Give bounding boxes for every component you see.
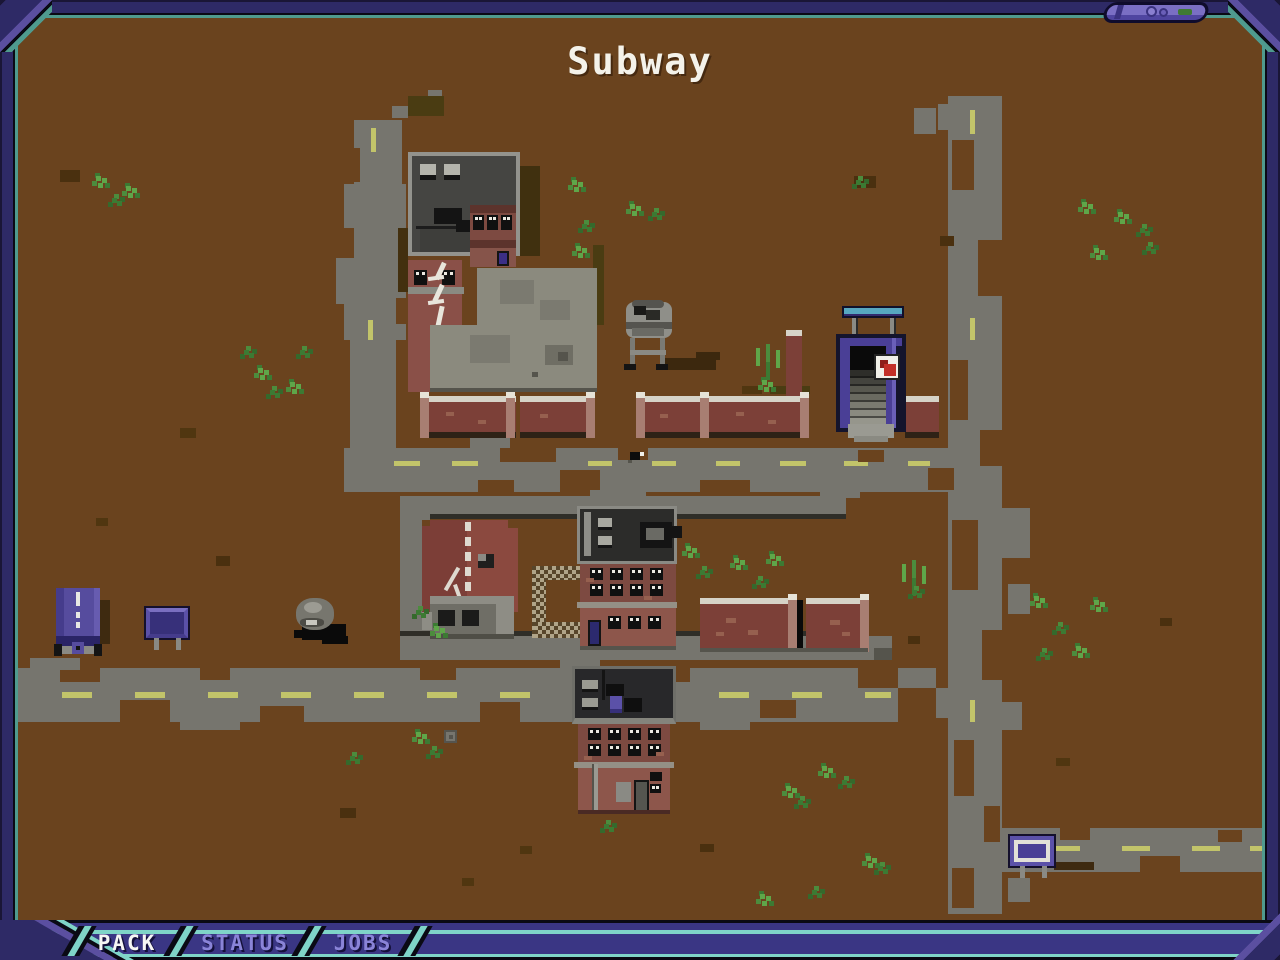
frame-top bbox=[0, 0, 1280, 18]
tab-pack[interactable]: PACK bbox=[84, 931, 170, 955]
frame-left bbox=[0, 0, 18, 960]
tab-status[interactable]: STATUS bbox=[192, 931, 298, 955]
grass-tuft bbox=[756, 580, 761, 585]
grass-tuft bbox=[1118, 212, 1123, 217]
frame-corner-bottomright bbox=[1232, 912, 1280, 960]
grass-tuft bbox=[652, 212, 657, 217]
grass-tuft bbox=[1140, 228, 1145, 233]
capsule-led-icon bbox=[1178, 9, 1192, 15]
grass-tuft bbox=[126, 186, 131, 191]
grass-tuft bbox=[1034, 596, 1039, 601]
grass-tuft bbox=[416, 610, 421, 615]
frame-right bbox=[1262, 0, 1280, 960]
grass-tuft bbox=[786, 786, 791, 791]
grass-tuft bbox=[822, 766, 827, 771]
grass-tuft bbox=[1056, 626, 1061, 631]
grass-tuft bbox=[762, 380, 767, 385]
grass-tuft bbox=[1076, 646, 1081, 651]
grass-tuft bbox=[686, 546, 691, 551]
grass-tuft bbox=[112, 198, 117, 203]
grass-tuft bbox=[1094, 248, 1099, 253]
grass-tuft bbox=[630, 204, 635, 209]
grass-tuft bbox=[576, 246, 581, 251]
grass-tuft bbox=[760, 894, 765, 899]
grass-tuft bbox=[912, 590, 917, 595]
grass-tuft bbox=[604, 824, 609, 829]
grass-layer bbox=[0, 0, 1280, 960]
grass-tuft bbox=[300, 350, 305, 355]
grass-tuft bbox=[866, 856, 871, 861]
capsule-knob-icon bbox=[1146, 6, 1157, 17]
grass-tuft bbox=[572, 180, 577, 185]
grass-tuft bbox=[244, 350, 249, 355]
grass-tuft bbox=[1040, 652, 1045, 657]
grass-tuft bbox=[350, 756, 355, 761]
grass-tuft bbox=[770, 554, 775, 559]
grass-tuft bbox=[1146, 246, 1151, 251]
grass-tuft bbox=[856, 180, 861, 185]
grass-tuft bbox=[582, 224, 587, 229]
grass-tuft bbox=[812, 890, 817, 895]
grass-tuft bbox=[902, 564, 906, 582]
tab-jobs[interactable]: JOBS bbox=[322, 931, 404, 955]
grass-tuft bbox=[700, 570, 705, 575]
capsule-knob-icon bbox=[1159, 8, 1168, 17]
frame-ornament-capsule bbox=[1096, 0, 1226, 28]
grass-tuft bbox=[842, 780, 847, 785]
grass-tuft bbox=[756, 348, 760, 366]
location-title: Subway bbox=[440, 40, 840, 83]
frame-corner-topright bbox=[1228, 0, 1280, 52]
game-screen: Subway PACK STATUS JOBS bbox=[0, 0, 1280, 960]
grass-tuft bbox=[430, 750, 435, 755]
grass-tuft bbox=[258, 368, 263, 373]
grass-tuft bbox=[1094, 600, 1099, 605]
frame-corner-topleft bbox=[0, 0, 52, 52]
grass-tuft bbox=[96, 176, 101, 181]
grass-tuft bbox=[290, 382, 295, 387]
grass-tuft bbox=[734, 558, 739, 563]
grass-tuft bbox=[798, 800, 803, 805]
grass-tuft bbox=[878, 866, 883, 871]
grass-tuft bbox=[270, 390, 275, 395]
grass-tuft bbox=[416, 732, 421, 737]
grass-tuft bbox=[1082, 202, 1087, 207]
tab-separator bbox=[406, 926, 432, 956]
grass-tuft bbox=[434, 626, 439, 631]
